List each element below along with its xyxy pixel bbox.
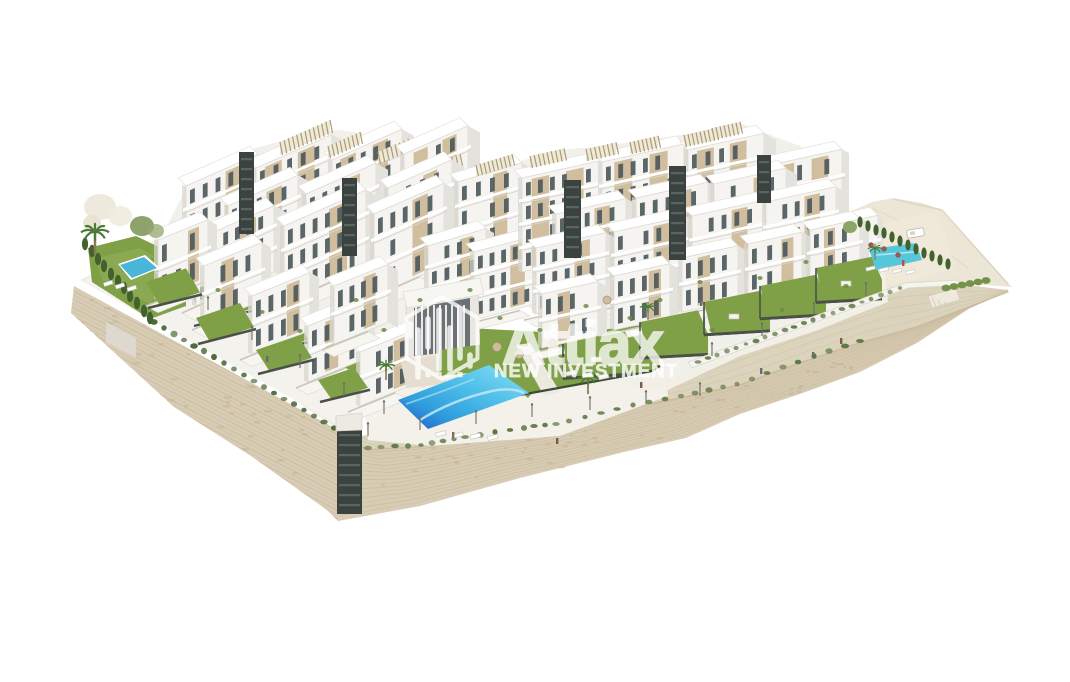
- svg-text:NEW INVESTMENT: NEW INVESTMENT: [494, 360, 678, 381]
